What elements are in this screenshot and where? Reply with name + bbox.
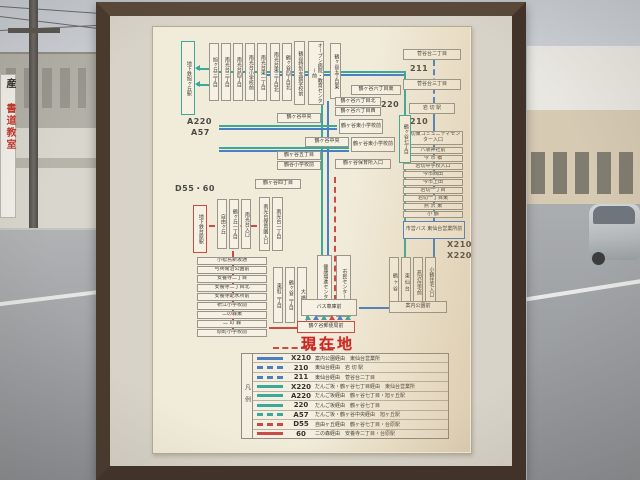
legend-route-number: 60 (287, 430, 315, 438)
map-stop-box: 南光台東三丁目北 (270, 43, 280, 101)
legend-route-number: 211 (287, 373, 315, 381)
map-stop-box: 南光台四丁目 (233, 43, 243, 101)
map-stop-box: 燕沢住宅前 (413, 257, 423, 307)
route-number-label: 211 (410, 64, 428, 73)
map-stop-box: 鶴ヶ丘一丁目 (229, 199, 239, 249)
route-arrow-icon (195, 65, 200, 71)
map-stop-box: 岩 切 駅 (409, 103, 455, 114)
map-stop-box: 与兵衛沼公園前 (197, 266, 267, 274)
map-stop-box: 南光台小学校前 (245, 43, 255, 101)
legend-route-description: 自由ヶ丘経由 鶴ヶ谷七丁目・台原駅 (315, 421, 448, 428)
map-stop-box: 市営バス 東仙台営業所前 (403, 221, 465, 239)
map-stop-box: 南光台入口 (241, 199, 251, 249)
building-right-beige (527, 110, 640, 206)
road-left (0, 230, 96, 480)
map-stop-box: バス車庫前 (301, 299, 357, 316)
route-number-label: D55・60 (175, 183, 215, 194)
map-stop-box: 岩切東コミュニティセンター入口 (403, 131, 463, 145)
legend-line-sample (253, 404, 287, 407)
legend-row: 211東仙台経由 菅谷台二丁目 (253, 373, 448, 382)
utility-pole-crossarm (8, 28, 60, 33)
map-stop-box: 旭ヶ丘三丁目 (209, 43, 219, 101)
building-windows (6, 68, 86, 108)
route-arrow-icon (305, 315, 311, 320)
map-stop-box: 南光台保育園入口 (259, 197, 270, 251)
map-stop-box: 鶴ヶ谷保育所入口 (335, 159, 391, 169)
legend-route-number: X210 (287, 354, 315, 362)
map-stop-box: 今市上田 (403, 179, 463, 186)
legend-row: D55自由ヶ丘経由 鶴ヶ谷七丁目・台原駅 (253, 420, 448, 429)
map-stop-box: 今 市 橋 (403, 155, 463, 162)
route-number-label: X210 (447, 240, 472, 249)
route-arrow-icon (337, 315, 343, 320)
map-stop-box: オープン病院・教育センター前 (308, 41, 324, 105)
legend-route-description: だんご坂経由 鶴ヶ谷七丁目 (315, 402, 448, 409)
parked-car (589, 194, 640, 268)
map-stop-box: 鶴ヶ谷二丁目 (285, 267, 295, 323)
legend-route-number: A57 (287, 411, 315, 419)
legend-row: X220だんご坂・鶴ヶ谷七丁目経由 東仙台営業所 (253, 382, 448, 391)
route-number-label: A57 (191, 128, 210, 137)
legend-side-title: 凡例 (242, 354, 253, 438)
street-photo: 産 書道教室 地下鉄旭ヶ丘駅旭ヶ丘三丁目南光台三丁目南光台四丁目南光台小学校前南… (0, 0, 640, 480)
map-stop-box: 安養寺二丁目 (197, 275, 267, 283)
map-stop-box: 小 鶴 (403, 211, 463, 218)
legend-row: 220だんご坂経由 鶴ヶ谷七丁目 (253, 401, 448, 410)
map-stop-box: 鶴ヶ谷五丁目東 (330, 43, 341, 99)
legend-line-sample (253, 376, 287, 379)
legend-route-description: 東仙台経由 菅谷台二丁目 (315, 374, 448, 381)
legend-route-description: 案内公園経由 東仙台営業所 (315, 355, 448, 362)
car-wheel (592, 252, 605, 265)
legend-line-sample (253, 366, 287, 369)
building-right-white (527, 46, 640, 112)
map-stop-box: 原町小学校前 (197, 329, 267, 337)
legend-title: 凡例 (243, 384, 252, 408)
legend-line-sample (253, 423, 287, 426)
legend-route-description: だんご坂・鶴ヶ谷七丁目経由 東仙台営業所 (315, 383, 448, 390)
map-stop-box: 南光台一丁目 (272, 197, 283, 251)
legend-route-description: だんご坂経由 鶴ヶ谷七丁目・旭ヶ丘駅 (315, 392, 448, 399)
legend-rows: X210案内公園経由 東仙台営業所210東仙台経由 岩 切 駅211東仙台経由 … (253, 354, 448, 438)
current-location-label: 現在地 (301, 333, 355, 354)
legend-row: 60二の森経由 安養寺二丁目・台原駅 (253, 430, 448, 438)
legend-route-number: 220 (287, 401, 315, 409)
legend-line-sample (253, 413, 287, 416)
legend-route-number: A220 (287, 392, 315, 400)
map-stop-box: 安養寺二丁目北 (197, 284, 267, 292)
route-arrow-icon (313, 315, 319, 320)
route-line-blue (219, 128, 337, 130)
map-stop-box: 鶴ヶ谷中央 (305, 137, 349, 147)
map-stop-box: 菅谷台三丁目 (403, 79, 461, 90)
map-stop-box: 八坂神社前 (403, 147, 463, 154)
map-stop-box: 鶴ヶ谷四丁目北 (282, 43, 292, 101)
map-stop-box: 鶴ヶ谷東小学校前 (351, 137, 395, 152)
car-windshield (593, 206, 635, 224)
legend-route-number: 210 (287, 364, 315, 372)
map-stop-box: 南光台三丁目 (221, 43, 231, 101)
utility-pole (29, 0, 38, 236)
map-stop-box: 鶴谷小学校前 (277, 161, 321, 170)
map-stop-box: 岩切一丁目 (403, 187, 463, 194)
map-stop-box: 燕 沢 東 (403, 203, 463, 210)
legend-route-description: 二の森経由 安養寺二丁目・台原駅 (315, 430, 448, 437)
map-stop-box: 岩切一丁目東 (403, 195, 463, 202)
map-stop-box: 鶴ヶ谷六丁目東 (351, 85, 401, 95)
map-stop-box: 二の森東 (197, 311, 267, 319)
map-stop-box: 鶴ヶ谷中央 (277, 113, 321, 123)
route-number-label: A220 (187, 117, 212, 126)
legend-line-sample (253, 385, 287, 388)
route-arrow-icon (329, 315, 335, 320)
route-line-teal (219, 147, 349, 149)
map-stop-box: 鶴ヶ谷東小学校前 (339, 119, 383, 134)
map-stop-box: 鶴ヶ谷六丁目北 (335, 97, 381, 106)
legend-route-description: だんご坂・鶴ヶ谷中央経由 旭ヶ丘駅 (315, 411, 448, 418)
roadside-sign: 産 書道教室 (0, 74, 16, 218)
route-line-teal (219, 125, 337, 127)
map-stop-box: 鶴谷特別支援学校前 (294, 41, 305, 105)
route-arrow-icon (195, 81, 200, 87)
map-paper: 地下鉄旭ヶ丘駅旭ヶ丘三丁目南光台三丁目南光台四丁目南光台小学校前南光台東一丁目南… (152, 26, 472, 454)
legend-row: 210東仙台経由 岩 切 駅 (253, 363, 448, 372)
map-stop-box: 安養寺配水所前 (197, 293, 267, 301)
roadside-sign-char: 産 (2, 78, 17, 88)
map-stop-box: 菅谷台二丁目 (403, 49, 461, 60)
route-line-blue (359, 307, 389, 309)
legend-line-sample (253, 432, 287, 435)
roadside-sign-text: 書道教室 (2, 103, 17, 151)
route-line-red (269, 327, 297, 329)
map-stop-box: 鶴ヶ谷六丁目西 (335, 107, 381, 116)
route-number-label: 210 (410, 117, 428, 126)
map-stop-box: 今市西田 (403, 171, 463, 178)
map-stop-box: 東町二丁目 (273, 267, 283, 323)
map-stop-box: 案内公園前 (389, 301, 447, 313)
map-stop-box: 鶴 ヶ 谷 (389, 257, 399, 307)
legend-row: A57だんご坂・鶴ヶ谷中央経由 旭ヶ丘駅 (253, 411, 448, 420)
map-stop-box: 二 の 森 (197, 320, 267, 328)
map-stop-box: 枡江小学校前 (197, 302, 267, 310)
map-stop-box: 地下鉄台原駅 (193, 205, 207, 253)
map-stop-box: 小鶴住宅入口 (425, 257, 436, 307)
map-stop-box: 東 仙 台 (401, 257, 411, 307)
map-stop-box: 鶴ヶ谷五丁目 (277, 151, 321, 160)
route-arrow-icon (345, 315, 351, 320)
map-stop-box: 岩切中学校入口 (403, 163, 463, 170)
route-number-label: 220 (381, 100, 399, 109)
legend-line-sample (253, 394, 287, 397)
legend-row: X210案内公園経由 東仙台営業所 (253, 354, 448, 363)
map-stop-box: 南光台東一丁目 (257, 43, 267, 101)
legend-table: 凡例 X210案内公園経由 東仙台営業所210東仙台経由 岩 切 駅211東仙台… (241, 353, 449, 439)
legend-row: A220だんご坂経由 鶴ヶ谷七丁目・旭ヶ丘駅 (253, 392, 448, 401)
legend-route-number: X220 (287, 383, 315, 391)
map-stop-box: 鶴ケ谷郵便局前 (297, 321, 355, 333)
route-arrow-icon (321, 315, 327, 320)
map-stop-box: 小松島新坂通 (197, 257, 267, 265)
legend-route-number: D55 (287, 420, 315, 428)
legend-line-sample (253, 357, 287, 360)
legend-route-description: 東仙台経由 岩 切 駅 (315, 364, 448, 371)
map-stop-box: 自由ヶ丘 (217, 199, 227, 249)
map-stop-box: 地下鉄旭ヶ丘駅 (181, 41, 195, 115)
route-number-label: X220 (447, 251, 472, 260)
map-stop-box: 鶴ヶ谷四丁目 (255, 179, 301, 189)
building-windows (531, 152, 637, 194)
route-line-teal (404, 71, 406, 115)
